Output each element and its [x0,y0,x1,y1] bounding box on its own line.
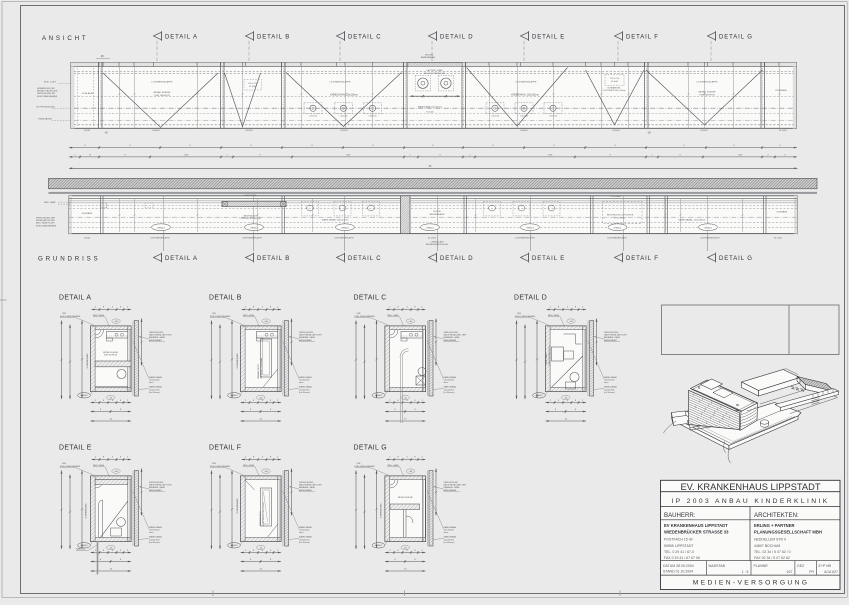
svg-text:NACH METALLART DER: NACH METALLART DER [299,484,322,487]
svg-text:MASSTAB: MASSTAB [709,564,726,568]
svg-text:NACH METALLART DER: NACH METALLART DER [444,334,467,337]
svg-text:SL 6X05: SL 6X05 [428,237,437,239]
svg-text:HELLIGK. REGELUNG: HELLIGK. REGELUNG [424,73,445,75]
svg-text:oben: oben [299,382,303,384]
svg-text:BEFANNE. GASE: BEFANNE. GASE [444,336,461,339]
svg-text:LICHTMESSKLAPPE: LICHTMESSKLAPPE [696,81,718,84]
svg-text:ABNEHMBAR: ABNEHMBAR [421,56,435,59]
svg-text:PLANUNGSGESELLSCHAFT MBH: PLANUNGSGESELLSCHAFT MBH [754,530,822,535]
svg-text:HEDDELLER STR 9: HEDDELLER STR 9 [754,538,786,542]
svg-text:MED. GASE: MED. GASE [388,464,400,467]
svg-text:EINFASSUNG DER: EINFASSUNG DER [37,87,55,90]
svg-text:GHB001: GHB001 [614,227,623,229]
svg-text:ERLING + PARTNER: ERLING + PARTNER [754,523,795,528]
svg-text:DETAIL D: DETAIL D [514,295,547,302]
svg-text:BEFANNE. GASE: BEFANNE. GASE [149,486,166,489]
svg-text:8: 8 [439,155,440,157]
svg-text:oben: oben [299,532,303,534]
svg-text:SCHLAUFE: SCHLAUFE [82,92,94,95]
svg-text:DETAIL B: DETAIL B [257,35,290,41]
svg-text:EDELSTAHLRAHMEN: EDELSTAHLRAHMEN [355,315,376,318]
svg-text:M E D I E N - V E R S O R G U: M E D I E N - V E R S O R G U N G [693,580,808,587]
svg-text:1.05x1.05: 1.05x1.05 [491,116,499,118]
svg-text:MED. GASE: MED. GASE [548,314,560,317]
svg-text:DETAIL E: DETAIL E [532,35,565,41]
svg-text:GHB001: GHB001 [80,545,87,547]
svg-text:MED. GASE IN DER: MED. GASE IN DER [36,222,55,225]
svg-text:LICHTMESSKLAPPE: LICHTMESSKLAPPE [329,81,351,84]
svg-text:PLANNR: PLANNR [754,564,769,568]
svg-text:SCHRANK: SCHRANK [82,212,93,215]
svg-text:LICHTMESSPLATTE: LICHTMESSPLATTE [242,236,262,239]
svg-text:MED. GASE: MED. GASE [93,314,105,317]
svg-text:GHB001: GHB001 [230,395,237,397]
svg-text:GHB001: GHB001 [80,395,87,397]
svg-text:2 MED. GASE: 2 MED. GASE [545,353,548,366]
svg-text:DETAIL E: DETAIL E [532,256,565,262]
svg-text:DETAIL D: DETAIL D [440,35,474,41]
svg-text:EDELSTAHLRAHMEN: EDELSTAHLRAHMEN [36,224,57,227]
svg-text:DETAIL C: DETAIL C [348,35,382,41]
svg-text:INSTALLATIONSKANAL: INSTALLATIONSKANAL [260,358,263,379]
svg-text:DETAIL G: DETAIL G [719,256,753,262]
svg-text:STAHLZARGE: STAHLZARGE [38,118,52,121]
svg-text:FÜR TELEFON: FÜR TELEFON [154,94,170,97]
svg-text:GHB001: GHB001 [375,395,382,397]
svg-text:NACH METALLART DER: NACH METALLART DER [444,484,467,487]
svg-text:WIEDENBRÜCKER STRASSE 33: WIEDENBRÜCKER STRASSE 33 [664,530,729,535]
svg-text:75: 75 [89,155,91,157]
svg-text:KABELKANAL: KABELKANAL [444,386,458,389]
svg-text:KABELKANAL 110x110mm: KABELKANAL 110x110mm [511,94,539,97]
svg-text:LICHTMESSPLATTE: LICHTMESSPLATTE [150,236,170,239]
svg-text:0.60001: 0.60001 [245,130,253,132]
svg-text:BEFANNE. GASE: BEFANNE. GASE [444,486,461,489]
svg-text:METALLFLÄCHE: METALLFLÄCHE [398,496,413,499]
svg-text:RECHTECKIG: RECHTECKIG [243,215,257,217]
svg-text:GEZ: GEZ [797,564,805,568]
svg-text:2: 2 [767,155,768,157]
svg-text:KABELKANAL: KABELKANAL [444,376,458,379]
svg-text:DETAIL B: DETAIL B [209,295,242,302]
svg-text:0.60001: 0.60001 [152,130,160,132]
svg-text:GHB001: GHB001 [341,227,350,229]
svg-text:(für Wasser): (für Wasser) [444,392,455,394]
svg-text:KABELKANAL: KABELKANAL [444,536,458,539]
svg-text:2 MEDICLAVE: 2 MEDICLAVE [430,241,444,244]
svg-text:KABELKANAL: KABELKANAL [604,376,618,379]
svg-text:DETAIL D: DETAIL D [440,256,474,262]
svg-text:8: 8 [259,155,260,157]
svg-text:METALLFLÄCHE: METALLFLÄCHE [699,91,717,94]
svg-text:100 x 50 mm: 100 x 50 mm [614,217,626,219]
svg-text:44807 BOCHUM: 44807 BOCHUM [754,544,780,548]
svg-text:BAUHERR:: BAUHERR: [664,512,696,519]
svg-text:SCHRANKWAND: SCHRANKWAND [236,498,239,514]
svg-text:-06: -06 [100,54,104,58]
svg-text:(für Wasser): (für Wasser) [149,542,160,544]
svg-text:FAX 0 29 41 / 67 67 06: FAX 0 29 41 / 67 67 06 [664,556,700,560]
svg-text:0.60001: 0.60001 [340,130,348,132]
svg-text:EDELSTAHLRAHMEN: EDELSTAHLRAHMEN [210,465,231,468]
svg-text:INSTALLATION DER: INSTALLATION DER [36,219,55,222]
svg-text:0.60001: 0.60001 [612,130,620,132]
svg-text:SCHRANKWAND: SCHRANKWAND [236,353,239,369]
svg-text:8: 8 [609,155,610,157]
svg-text:SCHRANKWAND: SCHRANKWAND [380,503,383,519]
svg-text:E+P NR: E+P NR [819,564,832,568]
svg-text:SCHRANKWAND: SCHRANKWAND [86,353,89,369]
svg-text:NACH METALLART DER: NACH METALLART DER [149,484,172,487]
svg-text:IP 2003 ANBAU KINDERKLINIK: IP 2003 ANBAU KINDERKLINIK [671,498,829,505]
svg-text:MED. GASE: MED. GASE [388,314,400,317]
svg-text:G R U N D R I S S: G R U N D R I S S [38,256,98,263]
svg-text:EDELSTAHLRAHMEN: EDELSTAHLRAHMEN [37,95,58,98]
svg-text:DETAIL B: DETAIL B [257,256,290,262]
svg-text:NACH METALLART DER: NACH METALLART DER [299,334,322,337]
svg-text:SL 6x05: SL 6x05 [426,112,434,114]
svg-text:(für Wasser): (für Wasser) [604,392,615,394]
svg-text:FÜR TELEFON: FÜR TELEFON [104,353,118,356]
svg-text:LICHTLEISTE 100 x 50mm: LICHTLEISTE 100 x 50mm [263,502,265,525]
svg-text:VERSORGUNG 60 Mun: VERSORGUNG 60 Mun [549,345,551,366]
svg-text:GHB001: GHB001 [157,227,166,229]
svg-text:DATUM 28.09.2004: DATUM 28.09.2004 [663,564,694,568]
svg-text:A N S I C H T: A N S I C H T [42,35,86,42]
svg-text:6.0000: 6.0000 [84,130,91,132]
svg-text:DETAIL F: DETAIL F [626,256,659,262]
svg-text:2: 2 [226,155,227,157]
svg-text:KABELKANAL: KABELKANAL [299,536,313,539]
svg-text:GHB001: GHB001 [375,545,382,547]
svg-text:KABELKANAL: KABELKANAL [604,386,618,389]
svg-text:8: 8 [679,155,680,157]
svg-text:LICHTMESSKLAPPE: LICHTMESSKLAPPE [151,81,173,84]
svg-text:ARCHITEKTEN:: ARCHITEKTEN: [754,512,799,519]
svg-text:DIGI PA06: DIGI PA06 [611,195,621,198]
svg-text:LICHTMESSPLATTE: LICHTMESSPLATTE [700,236,720,239]
svg-text:BEFANNE. GASE: BEFANNE. GASE [299,336,316,339]
svg-text:STAND 01.10.2004: STAND 01.10.2004 [663,570,693,574]
svg-text:(für Wasser): (für Wasser) [299,542,310,544]
svg-text:(für Wasser): (für Wasser) [149,392,160,394]
svg-text:TEL. 02 34 / 5 07 62 / 0: TEL. 02 34 / 5 07 62 / 0 [754,550,791,554]
svg-text:DECKEL: DECKEL [425,55,435,57]
svg-text:2: 2 [74,155,75,157]
svg-text:METALLFLÄCHE DER: METALLFLÄCHE DER [37,90,58,93]
svg-text:BEFANNE. GASE: BEFANNE. GASE [149,336,166,339]
svg-text:MED. GASE: MED. GASE [243,314,255,317]
svg-text:8: 8 [784,155,785,157]
svg-text:EDELSTAHLRAHMEN: EDELSTAHLRAHMEN [60,315,81,318]
svg-text:0.60001: 0.60001 [700,130,708,132]
svg-text:DETAIL C: DETAIL C [348,256,382,262]
svg-text:MED. GASE: MED. GASE [93,464,105,467]
svg-text:GHB001: GHB001 [535,395,542,397]
svg-text:KABELKANAL: KABELKANAL [444,526,458,529]
svg-text:KABELKANAL: KABELKANAL [149,536,163,539]
svg-text:8: 8 [124,155,125,157]
svg-text:oben: oben [444,382,448,384]
svg-text:DETAIL F: DETAIL F [626,35,659,41]
svg-text:EDELSTAHLRAHMEN: EDELSTAHLRAHMEN [60,465,81,468]
svg-text:SCHRANKWAND: SCHRANKWAND [85,503,88,519]
svg-text:KABELKANAL: KABELKANAL [299,526,313,529]
svg-text:BRANDSCHUTZ: BRANDSCHUTZ [259,510,262,525]
svg-text:oben: oben [604,382,608,384]
svg-text:oben: oben [149,532,153,534]
svg-text:PR: PR [809,570,814,574]
svg-text:KABELKANAL 110x110mm: KABELKANAL 110x110mm [322,218,349,221]
svg-text:KABELKANAL: KABELKANAL [149,386,163,389]
svg-text:LICHTLEISTE: LICHTLEISTE [244,195,257,197]
svg-text:FAX 02 34 / 5 07 62 62: FAX 02 34 / 5 07 62 62 [754,556,790,560]
svg-text:DETAIL E: DETAIL E [59,445,92,452]
svg-text:KABELKANAL: KABELKANAL [149,376,163,379]
svg-text:1.05x1.05: 1.05x1.05 [520,116,528,118]
svg-text:LICHTMESSPLATTE: LICHTMESSPLATTE [334,236,354,239]
svg-text:DETAIL A: DETAIL A [165,256,198,262]
svg-text:SL 6x05: SL 6x05 [249,86,256,88]
svg-text:1.05x1.05: 1.05x1.05 [369,116,377,118]
svg-text:SL 6X05: SL 6X05 [774,237,783,239]
svg-text:METALLFLÄCHE: METALLFLÄCHE [154,91,172,94]
svg-text:oben: oben [444,532,448,534]
svg-text:2: 2 [469,155,470,157]
svg-text:GHB001: GHB001 [230,545,237,547]
svg-text:SL 6x05: SL 6x05 [611,81,618,83]
svg-text:HABEBZL: HABEBZL [76,548,86,551]
svg-text:1.485: 1.485 [738,155,743,157]
svg-text:KABELKANAL: KABELKANAL [299,386,313,389]
svg-text:EV. KRANKENHAUS LIPPSTADT: EV. KRANKENHAUS LIPPSTADT [680,482,820,492]
svg-text:1.05 x 0.70: 1.05 x 0.70 [610,78,619,80]
svg-text:BRANDSCHUTZ: BRANDSCHUTZ [257,363,260,378]
svg-text:KABELKANAL 110x110mm: KABELKANAL 110x110mm [418,106,443,109]
svg-text:(für Wasser): (für Wasser) [444,542,455,544]
svg-text:NACH METALLART DER: NACH METALLART DER [604,334,627,337]
svg-text:1.05 x 0.70: 1.05 x 0.70 [248,83,257,85]
svg-text:DETAIL G: DETAIL G [354,445,387,452]
svg-text:MED. GASE: MED. GASE [44,201,56,204]
svg-text:LICHTMESSPLATTE: LICHTMESSPLATTE [515,236,535,239]
svg-text:SL 6X05: SL 6X05 [779,130,788,132]
svg-text:BEFANNE. GASE: BEFANNE. GASE [604,336,621,339]
svg-text:LICHTLEISTE 100 x 50mm: LICHTLEISTE 100 x 50mm [603,90,626,92]
svg-text:1.485: 1.485 [346,155,351,157]
svg-text:EDELSTAHLRAHMEN: EDELSTAHLRAHMEN [210,315,231,318]
svg-text:SCHRANK: SCHRANK [777,210,788,213]
svg-text:2: 2 [651,155,652,157]
svg-text:LICHTMESSPLATTE: LICHTMESSPLATTE [607,236,627,239]
svg-text:EDELSTAHLRAHMEN: EDELSTAHLRAHMEN [515,315,536,318]
svg-text:GHB001: GHB001 [704,227,713,229]
svg-text:DETAIL F: DETAIL F [209,445,241,452]
svg-text:1.485: 1.485 [548,155,553,157]
svg-text:1.05x1.05: 1.05x1.05 [340,116,348,118]
svg-text:2 LÜFTER 3PL WL/306: 2 LÜFTER 3PL WL/306 [240,217,262,220]
svg-text:GHB001: GHB001 [426,227,435,229]
svg-text:POSTFACH 15 40: POSTFACH 15 40 [664,538,693,542]
svg-text:LAUTSPR. GASE: LAUTSPR. GASE [427,69,444,72]
svg-text:TEL. 0 29 41 / 67-0: TEL. 0 29 41 / 67-0 [664,550,694,554]
svg-text:KABELKANAL 110x110mm: KABELKANAL 110x110mm [330,94,358,97]
svg-text:oben: oben [149,382,153,384]
svg-text:1.485: 1.485 [184,155,189,157]
svg-text:MED. GASE: MED. GASE [243,464,255,467]
svg-text:GHB001: GHB001 [526,227,535,229]
svg-text:DETAIL C: DETAIL C [354,295,387,302]
svg-text:1.05x1.05: 1.05x1.05 [309,116,317,118]
svg-text:MEDIENRAUM: MEDIENRAUM [430,213,445,216]
svg-text:DETAIL G: DETAIL G [719,35,753,41]
svg-text:MOD. 2.63 E: MOD. 2.63 E [44,81,57,83]
svg-text:LICHTMESSKLAPPE: LICHTMESSKLAPPE [515,81,537,84]
svg-text:59555 LIPPSTADT: 59555 LIPPSTADT [664,544,694,548]
svg-text:DETAIL A: DETAIL A [165,35,198,41]
svg-text:KOPIERER: KOPIERER [775,90,787,92]
svg-text:1.05x1.05: 1.05x1.05 [549,116,557,118]
svg-text:KABELKANAL: KABELKANAL [299,376,313,379]
svg-text:1 : 5: 1 : 5 [742,570,749,574]
svg-text:TECHN.: TECHN. [433,211,442,213]
svg-text:2: 2 [409,155,410,157]
svg-text:BEFANNE. GASE: BEFANNE. GASE [299,486,316,489]
svg-text:(für Wasser): (für Wasser) [299,392,310,394]
svg-text:6.0000: 6.0000 [84,237,91,239]
svg-text:EV KRANKENHAUS LIPPSTADT: EV KRANKENHAUS LIPPSTADT [664,523,728,528]
svg-text:627: 627 [787,570,793,574]
svg-text:EDELSTAHLRAHMEN: EDELSTAHLRAHMEN [355,465,376,468]
svg-text:MEDIENVERSORGUNG: MEDIENVERSORGUNG [426,244,449,246]
svg-text:KABELKANAL: KABELKANAL [149,526,163,529]
svg-text:ACA 627: ACA 627 [824,570,838,574]
svg-text:0.60001: 0.60001 [520,130,528,132]
svg-text:DETAIL A: DETAIL A [59,295,91,302]
svg-text:FÜR TELEFON: FÜR TELEFON [699,93,715,96]
svg-text:KABELKANAL, 110x110mm: KABELKANAL, 110x110mm [678,218,705,221]
svg-text:NACH METALLART DER: NACH METALLART DER [149,334,172,337]
